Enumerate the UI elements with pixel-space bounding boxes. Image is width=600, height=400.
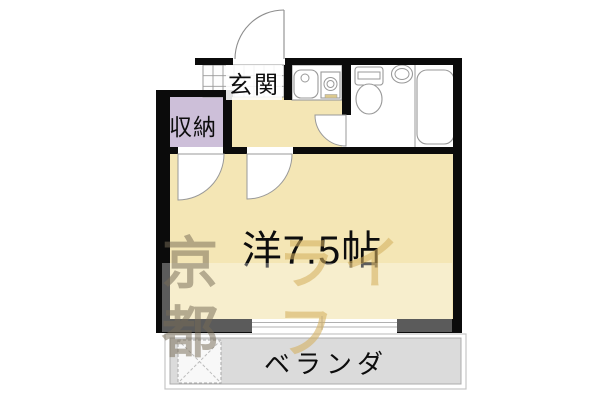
floor-fills — [170, 65, 453, 319]
floor-plan-drawing — [0, 0, 600, 400]
entrance-door-icon — [235, 10, 284, 59]
main-room-label: 洋7.5帖 — [170, 218, 454, 276]
wash-basin-icon — [392, 65, 413, 83]
storage-label: 収納 — [169, 108, 217, 142]
bathtub-icon — [417, 70, 454, 144]
genkan-label: 玄関 — [226, 65, 282, 100]
floor-plan: 玄関 収納 洋7.5帖 ベランダ 京都ライフ — [0, 0, 600, 400]
veranda-label: ベランダ — [196, 344, 456, 381]
gas-stove-icon — [321, 72, 340, 98]
kitchen-counter — [292, 65, 342, 100]
toilet-icon — [355, 67, 383, 114]
